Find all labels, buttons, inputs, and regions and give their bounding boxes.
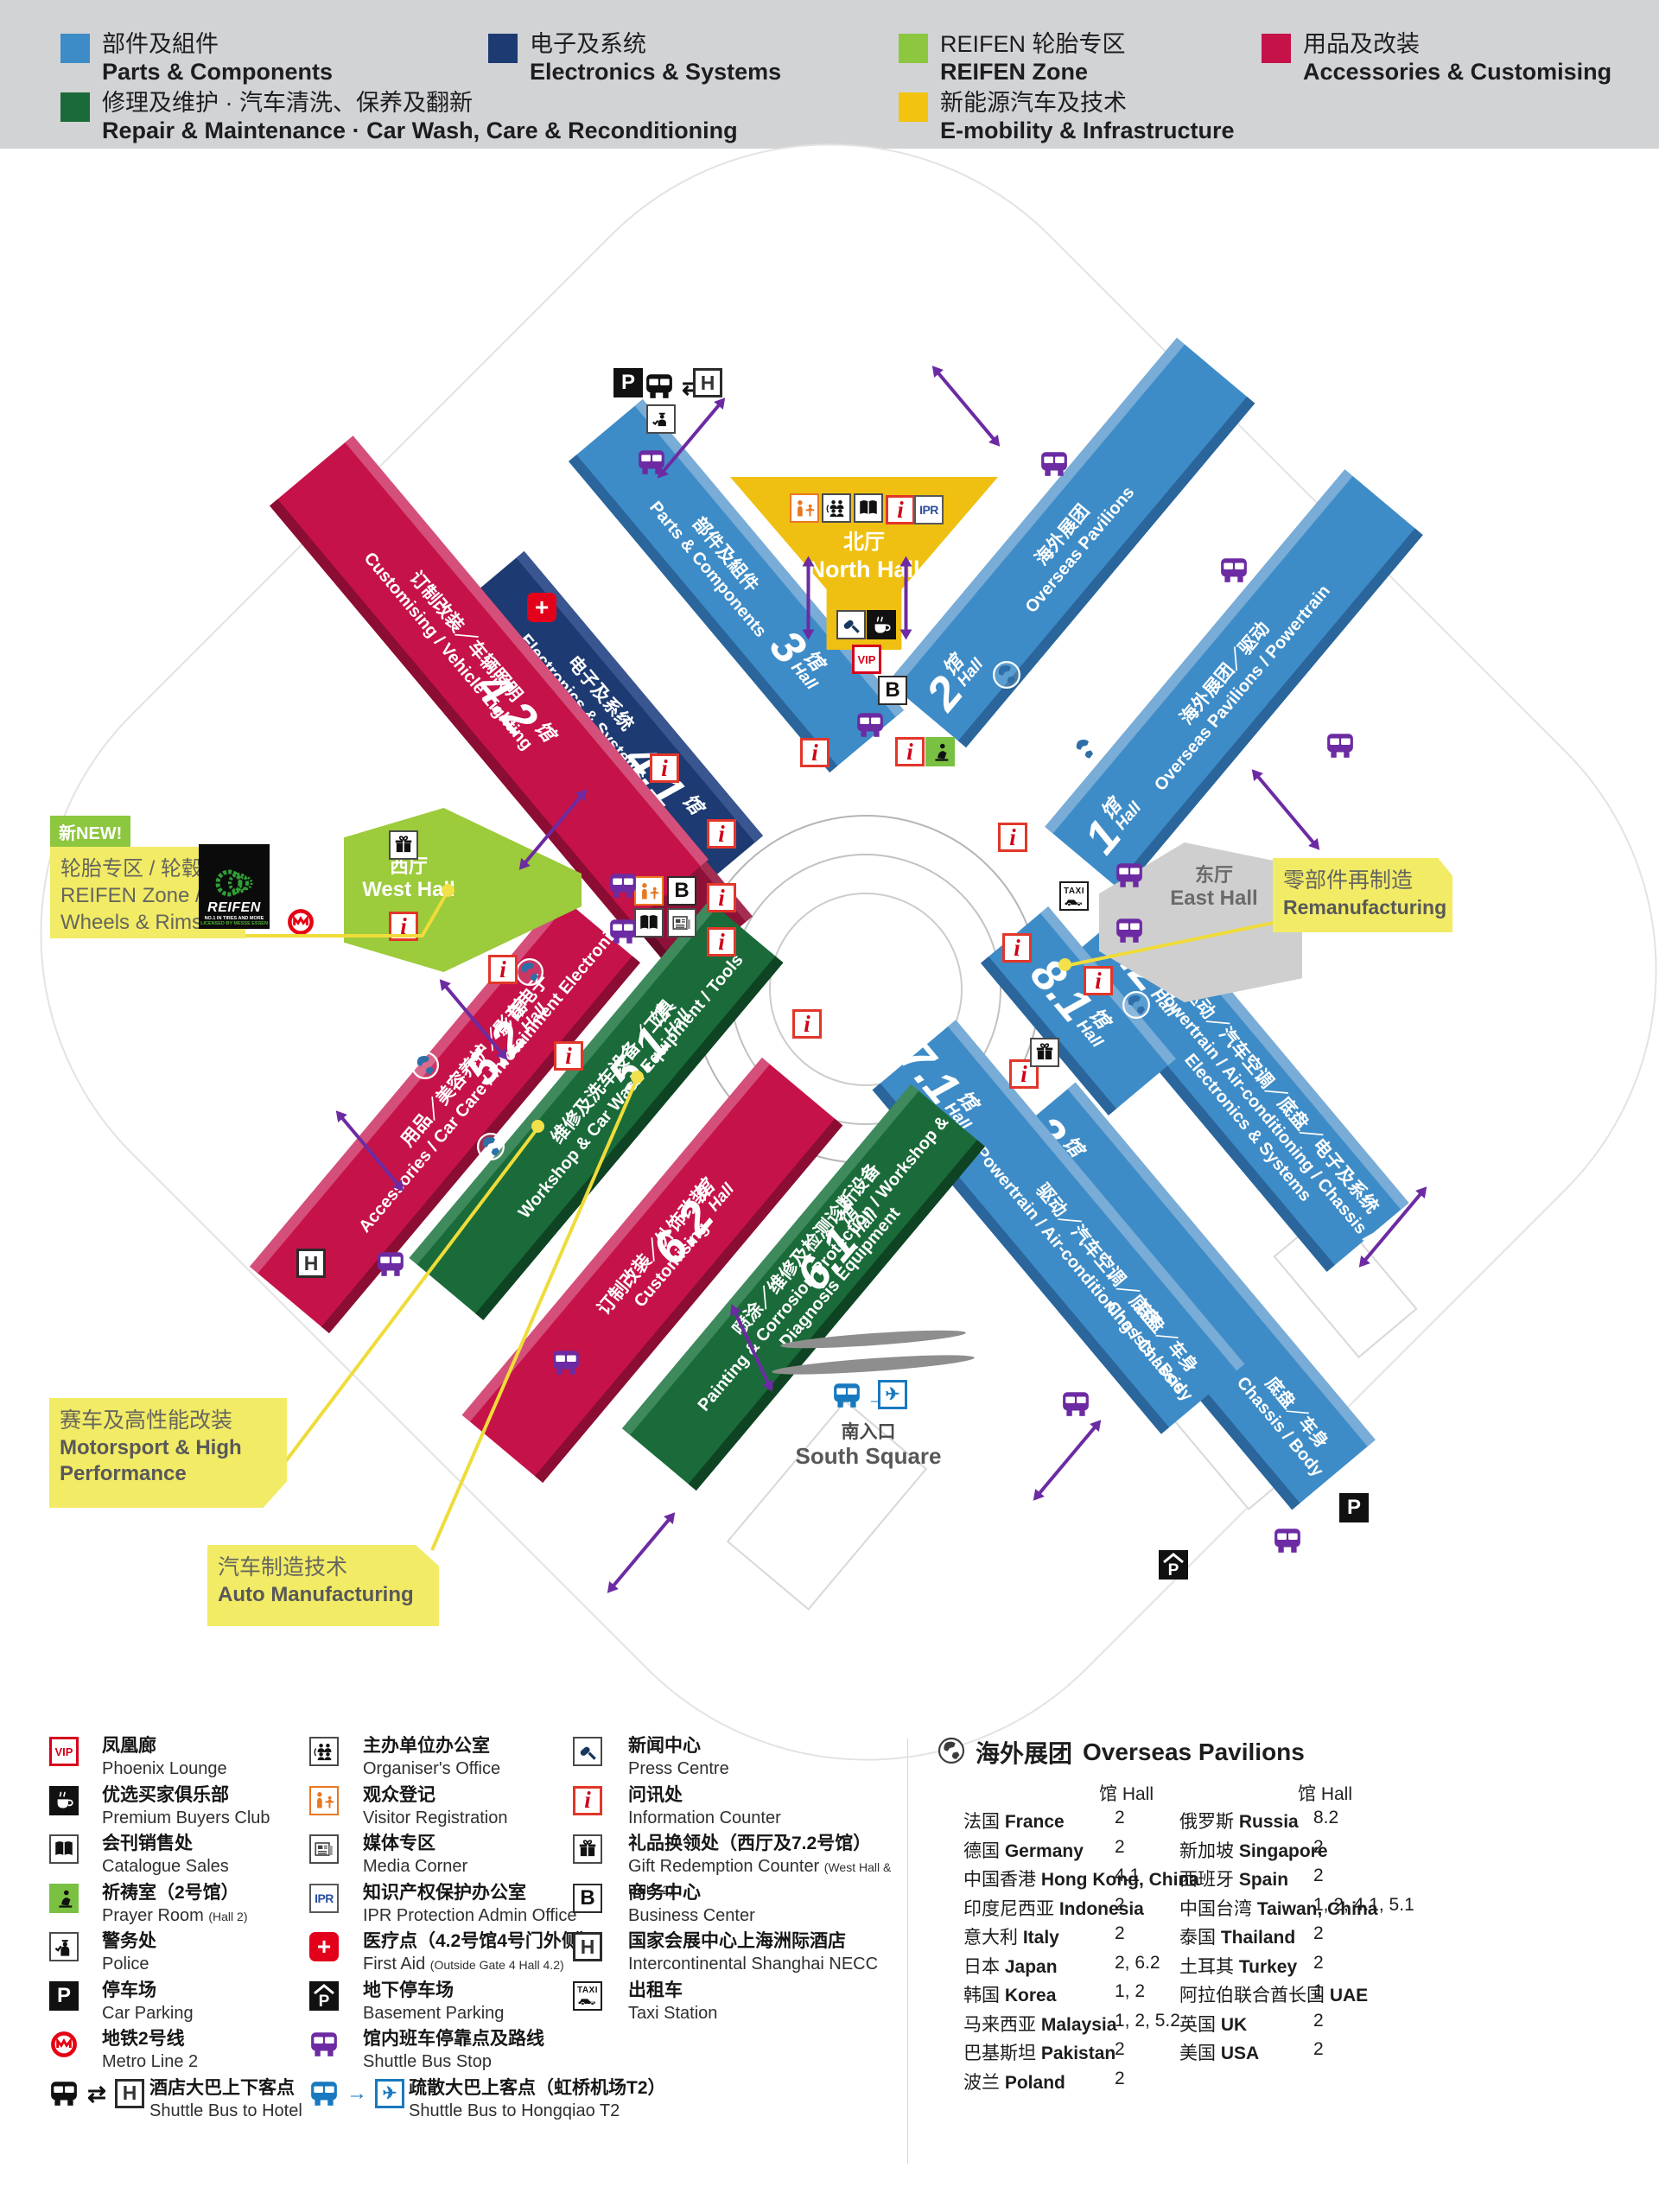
pavilion-country-en: USA bbox=[1221, 2044, 1259, 2063]
legend-item-en: Basement Parking bbox=[363, 2002, 648, 2024]
bus-icon bbox=[1115, 861, 1144, 890]
bp-icon: P bbox=[1159, 1550, 1188, 1580]
legend-item-text: 出租车 Taxi Station bbox=[628, 1980, 913, 2024]
hbox-icon: H bbox=[693, 368, 722, 397]
legend-item-en: Shuttle Bus Stop bbox=[363, 2050, 648, 2073]
category-labels: 部件及組件 Parts & Components bbox=[102, 31, 333, 86]
category-cn: 电子及系统 bbox=[530, 31, 781, 58]
hall-number-label: 2 馆Hall bbox=[920, 644, 991, 717]
legend-item: TAXI出租车 Taxi Station bbox=[573, 1981, 602, 2011]
category-en: REIFEN Zone bbox=[940, 58, 1126, 86]
legend-item-text: 地下停车场 Basement Parking bbox=[363, 1980, 648, 2024]
book-icon bbox=[49, 1834, 79, 1864]
pavilion-row: 法国 France bbox=[963, 1808, 1065, 1834]
north-hall-cn: 北厅 bbox=[730, 531, 998, 556]
globe-icon bbox=[1122, 990, 1151, 1020]
legend-item-en: Police bbox=[102, 1953, 387, 1975]
pavilion-country-en: France bbox=[1005, 1812, 1065, 1832]
legend-item-text: 凤凰廊 Phoenix Lounge bbox=[102, 1735, 387, 1780]
reifen-logo-word: REIFEN bbox=[207, 900, 261, 916]
legend-item-cn: 凤凰廊 bbox=[102, 1735, 387, 1758]
pavilion-hall-value: 2 bbox=[1313, 1923, 1324, 1944]
legend-item-cn: 警务处 bbox=[102, 1930, 387, 1953]
pavilion-country-cn: 中国台湾 bbox=[1179, 1899, 1252, 1919]
legend-item: H国家会展中心上海洲际酒店 Intercontinental Shanghai … bbox=[573, 1932, 602, 1961]
category-labels: 电子及系统 Electronics & Systems bbox=[530, 31, 781, 86]
pavilion-country-en: Italy bbox=[1023, 1928, 1059, 1948]
reifen-logo-sub2: LICENSED BY MESSE ESSEN bbox=[200, 921, 268, 926]
hall-number-label: 6.2 馆Hall bbox=[646, 1168, 742, 1271]
legend-item-icons bbox=[49, 2030, 79, 2059]
east-hall-label: 东厅 East Hall bbox=[1149, 864, 1279, 912]
east-hall-en: East Hall bbox=[1149, 887, 1279, 912]
pavilion-country-en: UK bbox=[1221, 2015, 1247, 2035]
hall-suffix: 馆 bbox=[531, 718, 558, 745]
legend-item-en: Business Center bbox=[628, 1904, 913, 1927]
bus-black-icon bbox=[645, 372, 674, 401]
pavilion-hall-value: 1, 2, 4.1, 5.1 bbox=[1313, 1895, 1414, 1916]
manufacturing-en: Auto Manufacturing bbox=[218, 1582, 429, 1608]
legend-item-cn: 知识产权保护办公室 bbox=[363, 1882, 648, 1904]
pavilion-country-cn: 中国香港 bbox=[963, 1870, 1036, 1890]
legend-item-en: Media Corner bbox=[363, 1855, 648, 1878]
coffee-icon bbox=[867, 610, 896, 639]
metro-icon bbox=[286, 907, 315, 937]
hbox-icon: H bbox=[115, 2079, 144, 2108]
south-square-cn: 南入口 bbox=[782, 1421, 955, 1443]
legend-item-cn: 地下停车场 bbox=[363, 1980, 648, 2002]
legend-item-text: 馆内班车停靠点及路线 Shuttle Bus Stop bbox=[363, 2028, 648, 2073]
media-icon bbox=[309, 1834, 339, 1864]
globe-icon bbox=[992, 660, 1021, 690]
gift-icon bbox=[389, 830, 418, 860]
pavilion-hall-value: 2 bbox=[1115, 2039, 1125, 2060]
pavilion-country-en: Germany bbox=[1005, 1841, 1084, 1861]
category-cn: REIFEN 轮胎专区 bbox=[940, 31, 1126, 58]
reg-icon bbox=[634, 876, 664, 906]
ipr-icon: IPR bbox=[309, 1884, 339, 1913]
legend-item-icons: i bbox=[573, 1786, 602, 1815]
legend-item: i问讯处 Information Counter bbox=[573, 1786, 602, 1815]
pavilion-hall-value: 2 bbox=[1313, 2011, 1324, 2031]
vip-icon: VIP bbox=[852, 645, 881, 674]
manufacturing-cn: 汽车制造技术 bbox=[218, 1554, 429, 1582]
legend-item-cn: 媒体专区 bbox=[363, 1833, 648, 1855]
legend-item: 观众登记 Visitor Registration bbox=[309, 1786, 339, 1815]
i-icon: i bbox=[1002, 933, 1032, 963]
legend-item-icons: ⇄H bbox=[49, 2079, 144, 2108]
pavilions-title-cn: 海外展团 bbox=[976, 1735, 1072, 1770]
i-icon: i bbox=[800, 738, 829, 767]
pavilion-row: 意大利 Italy bbox=[963, 1923, 1059, 1949]
prayer-icon bbox=[49, 1884, 79, 1913]
pavilion-hall-value: 2 bbox=[1313, 1866, 1324, 1886]
i-icon: i bbox=[792, 1009, 822, 1039]
motorsport-en2: Performance bbox=[60, 1461, 276, 1487]
legend-item: IPR知识产权保护办公室 IPR Protection Admin Office bbox=[309, 1884, 339, 1913]
pavilion-row: 日本 Japan bbox=[963, 1953, 1058, 1979]
pavilion-row: 巴基斯坦 Pakistan bbox=[963, 2039, 1116, 2065]
legend-item-text: 祈祷室（2号馆） Prayer Room (Hall 2) bbox=[102, 1882, 387, 1927]
pavilion-row: 韩国 Korea bbox=[963, 1981, 1056, 2007]
legend-item: B商务中心 Business Center bbox=[573, 1884, 602, 1913]
i-icon: i bbox=[573, 1786, 602, 1815]
pavilion-country-cn: 韩国 bbox=[963, 1986, 1000, 2005]
legend-item-icons: P bbox=[309, 1981, 339, 2011]
bus-icon bbox=[1325, 731, 1355, 760]
legend-item-en: Catalogue Sales bbox=[102, 1855, 387, 1878]
south-square-label: 南入口 South Square bbox=[782, 1421, 955, 1470]
legend-item-cn: 祈祷室（2号馆） bbox=[102, 1882, 387, 1904]
pavilion-hall-value: 2 bbox=[1313, 1837, 1324, 1858]
pavilion-hall-value: 4.1 bbox=[1115, 1866, 1140, 1886]
legend-item-cn: 停车场 bbox=[102, 1980, 387, 2002]
gift-icon bbox=[573, 1834, 602, 1864]
coffee-icon bbox=[49, 1786, 79, 1815]
legend-item-icons: IPR bbox=[309, 1884, 339, 1913]
pavilion-country-cn: 印度尼西亚 bbox=[963, 1899, 1054, 1919]
category-labels: 用品及改装 Accessories & Customising bbox=[1303, 31, 1611, 86]
pavilion-row: 马来西亚 Malaysia bbox=[963, 2011, 1116, 2037]
ipr-icon: IPR bbox=[914, 495, 944, 524]
globe-icon bbox=[476, 1132, 505, 1161]
legend-item-cn: 地铁2号线 bbox=[102, 2028, 387, 2050]
legend-item-icons bbox=[49, 1884, 79, 1913]
callout-anchor-dot bbox=[531, 1120, 544, 1133]
motorsport-callout: 赛车及高性能改装 Motorsport & High Performance bbox=[49, 1398, 287, 1508]
legend-item-cn: 会刊销售处 bbox=[102, 1833, 387, 1855]
legend-item: 主办单位办公室 Organiser's Office bbox=[309, 1737, 339, 1766]
pavilion-country-cn: 英国 bbox=[1179, 2015, 1216, 2035]
legend-item: P地下停车场 Basement Parking bbox=[309, 1981, 339, 2011]
legend-item-icons bbox=[309, 1786, 339, 1815]
hall-number-label: 3 馆Hall bbox=[763, 624, 834, 697]
east-hall-cn: 东厅 bbox=[1149, 864, 1279, 887]
pavilion-country-cn: 意大利 bbox=[963, 1928, 1018, 1948]
press-icon bbox=[573, 1737, 602, 1766]
vip-icon: VIP bbox=[49, 1737, 79, 1766]
legend-item-icons: VIP bbox=[49, 1737, 79, 1766]
pavilion-hall-value: 2 bbox=[1115, 1808, 1125, 1828]
pavilion-country-cn: 巴基斯坦 bbox=[963, 2044, 1036, 2063]
legend-item-text: 警务处 Police bbox=[102, 1930, 387, 1975]
legend-item-text: 医疗点（4.2号馆4号门外侧） First Aid (Outside Gate … bbox=[363, 1930, 648, 1975]
pavilion-row: 美国 USA bbox=[1179, 2039, 1259, 2065]
pavilion-country-en: Thailand bbox=[1221, 1928, 1295, 1948]
i-icon: i bbox=[886, 495, 915, 524]
pavilion-hall-value: 8.2 bbox=[1313, 1808, 1338, 1828]
legend-item: 祈祷室（2号馆） Prayer Room (Hall 2) bbox=[49, 1884, 79, 1913]
book-icon bbox=[634, 908, 664, 938]
legend-item-text: 国家会展中心上海洲际酒店 Intercontinental Shanghai N… bbox=[628, 1930, 913, 1975]
i-icon: i bbox=[488, 955, 518, 984]
police-icon bbox=[49, 1932, 79, 1961]
legend-item-text: 地铁2号线 Metro Line 2 bbox=[102, 2028, 387, 2073]
bus-icon bbox=[1273, 1526, 1302, 1555]
pavilion-row: 阿拉伯联合酋长国 UAE bbox=[1179, 1981, 1368, 2007]
legend-item-icons bbox=[49, 1932, 79, 1961]
i-icon: i bbox=[895, 737, 925, 766]
legend-item-text: 新闻中心 Press Centre bbox=[628, 1735, 913, 1780]
callout-anchor-dot bbox=[442, 884, 454, 897]
org-icon bbox=[822, 493, 851, 523]
legend-item-cn: 医疗点（4.2号馆4号门外侧） bbox=[363, 1930, 648, 1953]
i-icon: i bbox=[554, 1041, 583, 1071]
remanufacturing-callout: 零部件再制造 Remanufacturing bbox=[1273, 858, 1452, 932]
pavilion-country-cn: 土耳其 bbox=[1179, 1957, 1234, 1977]
motorsport-cn: 赛车及高性能改装 bbox=[60, 1407, 276, 1435]
legend-item-cn: 主办单位办公室 bbox=[363, 1735, 648, 1758]
pavilion-hall-value: 1, 2, 5.2 bbox=[1115, 2011, 1180, 2031]
category-labels: 新能源汽车及技术 E-mobility & Infrastructure bbox=[940, 90, 1235, 144]
category-en: Accessories & Customising bbox=[1303, 58, 1611, 86]
venue-map-page: 部件及組件 Parts & Components 电子及系统 Electroni… bbox=[0, 0, 1659, 2212]
media-icon bbox=[667, 908, 696, 938]
legend-item: →✈疏散大巴上客点（虹桥机场T2） Shuttle Bus to Hongqia… bbox=[309, 2079, 404, 2108]
legend-item: 媒体专区 Media Corner bbox=[309, 1834, 339, 1864]
legend-item-text: 商务中心 Business Center bbox=[628, 1882, 913, 1927]
reman-cn: 零部件再制造 bbox=[1283, 867, 1442, 895]
category-color-swatch bbox=[899, 92, 928, 122]
pavilion-country-cn: 日本 bbox=[963, 1957, 1000, 1977]
category-legend-item: 用品及改装 Accessories & Customising bbox=[1262, 31, 1611, 86]
legend-item-text: 知识产权保护办公室 IPR Protection Admin Office bbox=[363, 1882, 648, 1927]
svg-text:P: P bbox=[319, 1993, 330, 2011]
pavilion-row: 波兰 Poland bbox=[963, 2069, 1065, 2094]
legend-item: VIP凤凰廊 Phoenix Lounge bbox=[49, 1737, 79, 1766]
pavilion-row: 德国 Germany bbox=[963, 1837, 1084, 1863]
bus-icon bbox=[309, 2030, 339, 2059]
west-hall-label: 西厅 West Hall bbox=[344, 855, 474, 903]
legend-item-cn: 出租车 bbox=[628, 1980, 913, 2002]
hall-suffix: 馆 bbox=[679, 791, 706, 817]
legend-item-icons bbox=[309, 1737, 339, 1766]
new-badge: 新NEW! bbox=[50, 816, 130, 848]
pavilion-row: 土耳其 Turkey bbox=[1179, 1953, 1297, 1979]
legend-item-icons: H bbox=[573, 1932, 602, 1961]
globe-icon bbox=[1070, 734, 1099, 764]
bus-icon bbox=[855, 710, 885, 740]
motorsport-en1: Motorsport & High bbox=[60, 1435, 276, 1461]
legend-item-en: Prayer Room (Hall 2) bbox=[102, 1904, 387, 1927]
plane-icon: ✈ bbox=[878, 1380, 907, 1409]
pavilion-hall-value: 2 bbox=[1115, 1923, 1125, 1944]
category-legend-item: 电子及系统 Electronics & Systems bbox=[488, 31, 781, 86]
bus-icon bbox=[608, 871, 638, 900]
hbox-icon: H bbox=[573, 1932, 602, 1961]
category-cn: 用品及改装 bbox=[1303, 31, 1611, 58]
legend-item-text: 会刊销售处 Catalogue Sales bbox=[102, 1833, 387, 1878]
bus-black-icon bbox=[49, 2079, 79, 2108]
category-labels: REIFEN 轮胎专区 REIFEN Zone bbox=[940, 31, 1126, 86]
pavilion-hall-value: 2 bbox=[1115, 2069, 1125, 2089]
legend-item: 会刊销售处 Catalogue Sales bbox=[49, 1834, 79, 1864]
i-icon: i bbox=[707, 819, 736, 849]
pavilion-country-cn: 俄罗斯 bbox=[1179, 1812, 1234, 1832]
globe-icon bbox=[938, 1737, 965, 1769]
org-icon bbox=[309, 1737, 339, 1766]
legend-item-en: Organiser's Office bbox=[363, 1758, 648, 1780]
legend-item-icons: P bbox=[49, 1981, 79, 2011]
legend-item-cn: 礼品换领处（西厅及7.2号馆） bbox=[628, 1833, 913, 1855]
legend-item-icons: + bbox=[309, 1932, 339, 1961]
legend-item: 地铁2号线 Metro Line 2 bbox=[49, 2030, 79, 2059]
i-icon: i bbox=[707, 883, 736, 912]
globe-icon bbox=[410, 1051, 440, 1080]
legend-item-en: Intercontinental Shanghai NECC bbox=[628, 1953, 913, 1975]
customs-icon bbox=[646, 404, 676, 434]
hall-column-header: 馆 Hall bbox=[1298, 1780, 1352, 1806]
reg-icon bbox=[790, 493, 819, 523]
pavilion-hall-value: 1, 2 bbox=[1115, 1981, 1145, 2002]
bus-icon bbox=[1061, 1389, 1090, 1419]
book-icon bbox=[854, 493, 883, 523]
legend-item-text: 媒体专区 Media Corner bbox=[363, 1833, 648, 1878]
pavilion-country-cn: 泰国 bbox=[1179, 1928, 1216, 1948]
p-icon: P bbox=[1339, 1493, 1369, 1522]
bus-icon bbox=[376, 1249, 405, 1279]
pavilion-country-en: Spain bbox=[1239, 1870, 1288, 1890]
legend-item-cn: 国家会展中心上海洲际酒店 bbox=[628, 1930, 913, 1953]
metro-icon bbox=[49, 2030, 79, 2059]
i-icon: i bbox=[1084, 966, 1113, 995]
pavilion-hall-value: 2, 6.2 bbox=[1115, 1953, 1160, 1974]
legend-item-icons: B bbox=[573, 1884, 602, 1913]
category-labels: 修理及维护 · 汽车清洗、保养及翻新 Repair & Maintenance … bbox=[102, 90, 738, 144]
legend-item-en: IPR Protection Admin Office bbox=[363, 1904, 648, 1927]
category-color-swatch bbox=[488, 34, 518, 63]
reg-icon bbox=[309, 1786, 339, 1815]
category-legend-item: 新能源汽车及技术 E-mobility & Infrastructure bbox=[899, 90, 1235, 144]
pavilion-country-en: UAE bbox=[1330, 1986, 1368, 2005]
pavilion-row: 中国香港 Hong Kong, China bbox=[963, 1866, 1199, 1891]
hall-column-header: 馆 Hall bbox=[1099, 1780, 1154, 1806]
pavilion-row: 英国 UK bbox=[1179, 2011, 1247, 2037]
legend-item-cn: 优选买家俱乐部 bbox=[102, 1784, 387, 1807]
legend-item-en: Phoenix Lounge bbox=[102, 1758, 387, 1780]
tire-graphic bbox=[215, 866, 253, 900]
pavilion-country-en: Russia bbox=[1239, 1812, 1299, 1832]
legend-item-cn: 疏散大巴上客点（虹桥机场T2） bbox=[409, 2077, 694, 2100]
p-icon: P bbox=[613, 368, 643, 397]
legend-item-cn: 商务中心 bbox=[628, 1882, 913, 1904]
legend-item-text: 观众登记 Visitor Registration bbox=[363, 1784, 648, 1829]
pavilion-country-cn: 西班牙 bbox=[1179, 1870, 1234, 1890]
legend-item-icons: TAXI bbox=[573, 1981, 602, 2011]
legend-item-text: 主办单位办公室 Organiser's Office bbox=[363, 1735, 648, 1780]
reman-en: Remanufacturing bbox=[1283, 895, 1442, 920]
legend-item-en: Visitor Registration bbox=[363, 1807, 648, 1829]
bbox-icon: B bbox=[878, 676, 907, 705]
legend-item: 警务处 Police bbox=[49, 1932, 79, 1961]
pavilion-hall-value: 2 bbox=[1313, 2039, 1324, 2060]
legend-item-icons bbox=[309, 1834, 339, 1864]
pavilion-country-cn: 美国 bbox=[1179, 2044, 1216, 2063]
legend-item-icons bbox=[573, 1737, 602, 1766]
bus-blue-icon bbox=[309, 2079, 339, 2108]
bbox-icon: B bbox=[667, 876, 696, 906]
legend-item: ⇄H酒店大巴上下客点 Shuttle Bus to Hotel bbox=[49, 2079, 144, 2108]
category-legend: 部件及組件 Parts & Components 电子及系统 Electroni… bbox=[0, 0, 1659, 149]
arrow-r-icon: → bbox=[342, 2079, 372, 2108]
pavilion-hall-value: 2 bbox=[1115, 1837, 1125, 1858]
pavilion-country-en: Indonesia bbox=[1059, 1899, 1144, 1919]
pavilion-hall-value: 2 bbox=[1115, 1895, 1125, 1916]
legend-item: P停车场 Car Parking bbox=[49, 1981, 79, 2011]
legend-item-en: Taxi Station bbox=[628, 2002, 913, 2024]
i-icon: i bbox=[707, 927, 736, 957]
bp-icon: P bbox=[309, 1981, 339, 2011]
legend-item-text: 停车场 Car Parking bbox=[102, 1980, 387, 2024]
pavilion-country-en: Korea bbox=[1005, 1986, 1057, 2005]
south-square-en: South Square bbox=[782, 1443, 955, 1470]
pavilion-row: 泰国 Thailand bbox=[1179, 1923, 1295, 1949]
legend-item-en: Premium Buyers Club bbox=[102, 1807, 387, 1829]
visitor-flow-arrow bbox=[904, 562, 907, 635]
taxi-icon: TAXI bbox=[573, 1981, 602, 2011]
category-legend-item: REIFEN 轮胎专区 REIFEN Zone bbox=[899, 31, 1126, 86]
hall-number-label: 1 馆Hall bbox=[1078, 787, 1149, 861]
legend-item: 优选买家俱乐部 Premium Buyers Club bbox=[49, 1786, 79, 1815]
legend-item-cn: 观众登记 bbox=[363, 1784, 648, 1807]
pavilion-country-en: Malaysia bbox=[1041, 2015, 1117, 2035]
p-icon: P bbox=[49, 1981, 79, 2011]
svg-text:P: P bbox=[1168, 1561, 1179, 1580]
i-icon: i bbox=[650, 753, 679, 783]
legend-item: +医疗点（4.2号馆4号门外侧） First Aid (Outside Gate… bbox=[309, 1932, 339, 1961]
bus-icon bbox=[551, 1348, 581, 1377]
pavilion-row: 新加坡 Singapore bbox=[1179, 1837, 1328, 1863]
category-color-swatch bbox=[899, 34, 928, 63]
plane-icon: ✈ bbox=[375, 2079, 404, 2108]
legend-item-icons bbox=[49, 1786, 79, 1815]
legend-item-en: Shuttle Bus to Hongqiao T2 bbox=[409, 2100, 694, 2122]
bus-blue-icon bbox=[832, 1381, 861, 1410]
pavilion-country-cn: 新加坡 bbox=[1179, 1841, 1234, 1861]
legend-item: 馆内班车停靠点及路线 Shuttle Bus Stop bbox=[309, 2030, 339, 2059]
legend-item-icons: →✈ bbox=[309, 2079, 404, 2108]
category-color-swatch bbox=[60, 34, 90, 63]
hall-number-label: 5.2 馆Hall bbox=[459, 989, 555, 1092]
pavilion-country-en: Turkey bbox=[1239, 1957, 1297, 1977]
hbox-icon: H bbox=[296, 1249, 326, 1278]
pavilion-country-en: Poland bbox=[1005, 2073, 1065, 2093]
prayer-icon bbox=[925, 737, 955, 766]
category-en: Parts & Components bbox=[102, 58, 333, 86]
category-cn: 部件及組件 bbox=[102, 31, 333, 58]
reifen-logo: REIFEN NO.1 IN TIRES AND MORE LICENSED B… bbox=[199, 844, 270, 929]
legend-item-text: 优选买家俱乐部 Premium Buyers Club bbox=[102, 1784, 387, 1829]
visitor-flow-arrow bbox=[806, 562, 810, 635]
category-color-swatch bbox=[1262, 34, 1291, 63]
legend-item-en: Information Counter bbox=[628, 1807, 913, 1829]
category-cn: 新能源汽车及技术 bbox=[940, 90, 1235, 117]
legend-item-en: Car Parking bbox=[102, 2002, 387, 2024]
pavilion-country-en: Japan bbox=[1005, 1957, 1058, 1977]
pavilion-country-cn: 法国 bbox=[963, 1812, 1000, 1832]
taxi-icon: TAXI bbox=[1059, 881, 1089, 911]
legend-item-cn: 馆内班车停靠点及路线 bbox=[363, 2028, 648, 2050]
plus-icon: + bbox=[527, 593, 556, 622]
north-hall-label: 北厅 North Hall bbox=[730, 531, 998, 583]
legend-item-en: Press Centre bbox=[628, 1758, 913, 1780]
legend-item-text: 疏散大巴上客点（虹桥机场T2） Shuttle Bus to Hongqiao … bbox=[409, 2077, 694, 2122]
legend-item: 礼品换领处（西厅及7.2号馆） Gift Redemption Counter … bbox=[573, 1834, 602, 1864]
bus-icon bbox=[1039, 449, 1069, 479]
plus-icon: + bbox=[309, 1932, 339, 1961]
globe-icon bbox=[515, 957, 544, 987]
legend-item-icons bbox=[309, 2030, 339, 2059]
